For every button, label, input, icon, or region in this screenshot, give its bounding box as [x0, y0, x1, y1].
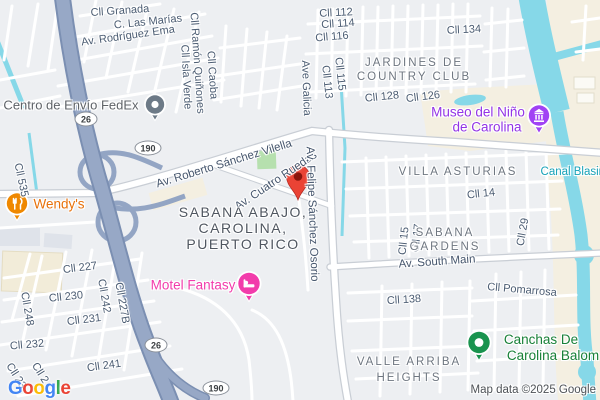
locality-label: SABANA ABAJO,: [179, 204, 307, 220]
google-logo-letter: g: [45, 378, 56, 399]
area-label: GARDENS: [410, 241, 481, 253]
street-label: Ave Galicia: [299, 60, 313, 116]
poi-label-canchas-line1[interactable]: Canchas De: [504, 332, 578, 348]
route-badge-26: 26: [75, 112, 98, 127]
area-label: SABANA: [416, 227, 475, 239]
water-label: Canal Blasina: [541, 166, 600, 178]
google-logo[interactable]: Google: [8, 378, 70, 400]
street-label: Cll 138: [386, 293, 421, 307]
canal-pool: [578, 363, 596, 381]
locality-label: PUERTO RICO: [186, 236, 299, 252]
poi-label-motel[interactable]: Motel Fantasy: [151, 278, 236, 293]
google-logo-letter: e: [60, 378, 70, 399]
generic-poi-icon: [151, 101, 158, 108]
building-footprint: [574, 77, 595, 89]
google-logo-letter: o: [33, 378, 44, 399]
building-footprint: [0, 228, 40, 246]
map-canvas[interactable]: Cll Granada C. Las Marías Av. Rodríguez …: [0, 0, 600, 400]
poi-label-museo-line2[interactable]: de Carolina: [452, 120, 521, 135]
map-attribution: Map data ©2025 Google: [471, 384, 596, 396]
area-label: HEIGHTS: [376, 372, 441, 384]
building-footprint: [44, 233, 73, 249]
area-label: JARDINES DE: [365, 57, 463, 69]
poi-label-museo-line1[interactable]: Museo del Niño: [431, 105, 525, 120]
area-label: VILLA ASTURIAS: [399, 166, 518, 178]
google-logo-letter: o: [22, 378, 33, 399]
street-label: Cll 114: [321, 17, 355, 31]
area-label: COUNTRY CLUB: [357, 71, 471, 83]
street-label: Cll 134: [447, 23, 482, 37]
route-badge-190: 190: [203, 381, 230, 396]
locality-label: CAROLINA,: [199, 220, 288, 236]
route-badge-190: 190: [135, 141, 162, 156]
area-label: VALLE ARRIBA: [357, 356, 461, 368]
poi-label-wendys[interactable]: Wendy's: [33, 197, 84, 212]
building-footprint: [577, 93, 594, 103]
google-logo-letter: G: [8, 378, 22, 399]
poi-label-canchas-line2[interactable]: Carolina Balom: [507, 348, 599, 364]
sports-field-icon: [475, 338, 484, 347]
route-badge-26: 26: [145, 338, 168, 353]
poi-label-fedex[interactable]: Centro de Envío FedEx: [3, 98, 138, 113]
